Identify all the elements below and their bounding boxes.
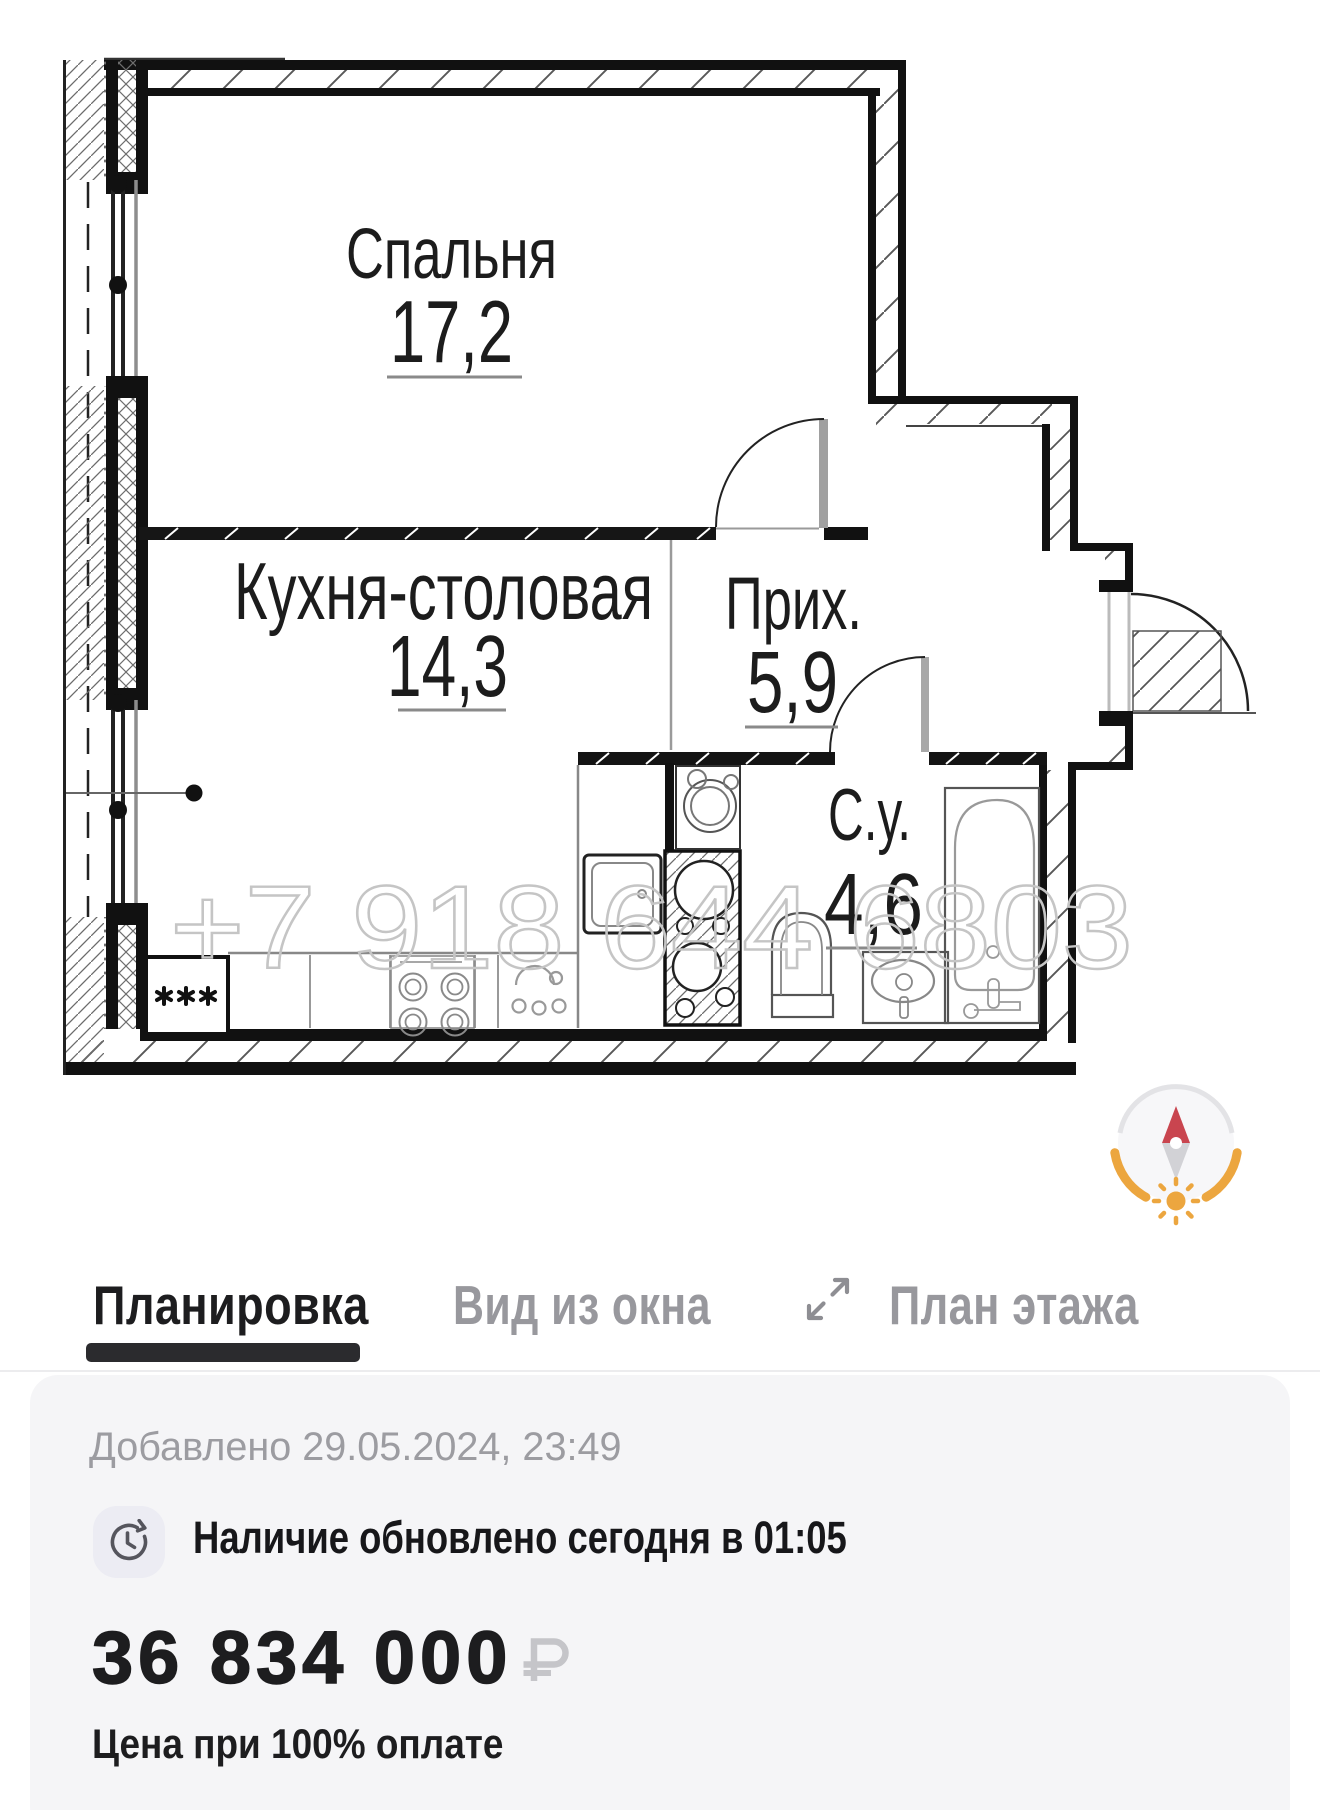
svg-text:17,2: 17,2: [390, 282, 513, 381]
svg-text:14,3: 14,3: [387, 618, 508, 715]
svg-text:Прих.: Прих.: [725, 562, 862, 645]
svg-text:5,9: 5,9: [747, 634, 838, 731]
svg-text:+7 918 644 6803: +7 918 644 6803: [170, 862, 1133, 994]
svg-text:С.у.: С.у.: [828, 775, 911, 856]
